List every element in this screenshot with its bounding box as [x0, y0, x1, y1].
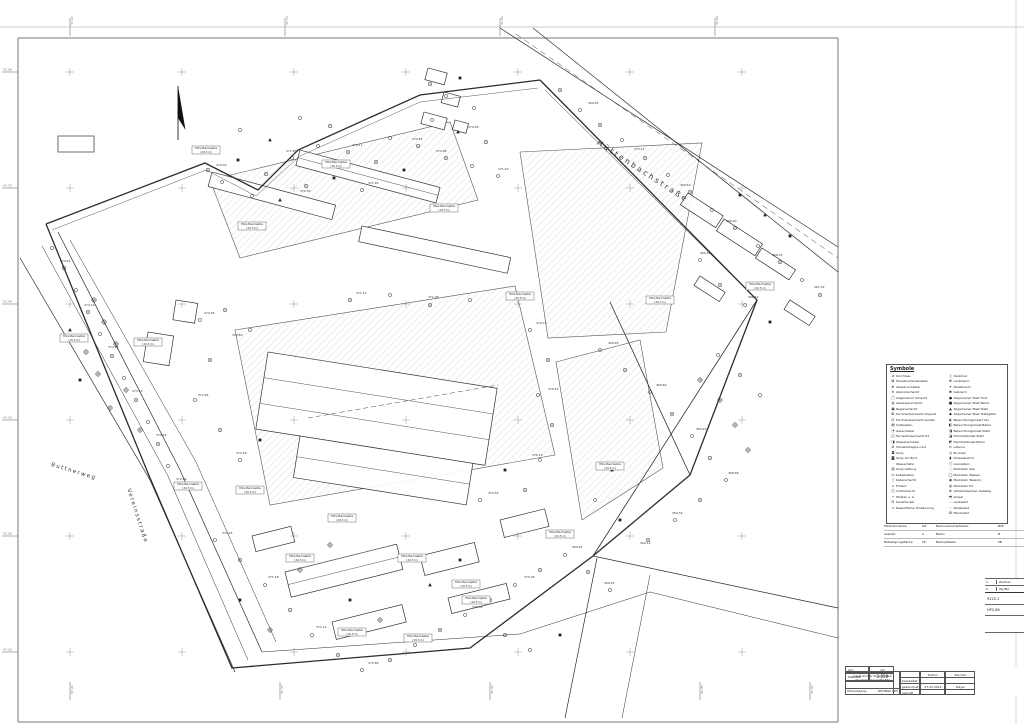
svg-text:35 230: 35 230 — [500, 16, 504, 25]
building-outline — [500, 509, 549, 538]
tree-height-label: Höhe Baumspitze(±0.5 m) — [404, 634, 432, 642]
elevation-label: 369.85 — [588, 101, 599, 105]
svg-text:(±0.5 m): (±0.5 m) — [346, 632, 357, 636]
survey-point — [156, 442, 160, 446]
grid-cross — [178, 68, 186, 76]
grid-cross — [738, 184, 746, 192]
elevation-label: 367.92 — [814, 285, 825, 289]
date-geprueft — [921, 690, 944, 695]
svg-text:Höhe Baumspitze: Höhe Baumspitze — [195, 146, 217, 150]
building-outline — [359, 226, 511, 273]
svg-text:(±0.5 m): (±0.5 m) — [470, 600, 481, 604]
elevation-label: 369.54 — [680, 183, 691, 187]
survey-point — [800, 278, 803, 281]
sheet-label-cell: Anl. — [845, 666, 869, 673]
survey-point — [403, 169, 406, 172]
survey-point — [484, 140, 488, 144]
survey-point — [428, 82, 432, 86]
survey-point — [237, 159, 240, 162]
survey-point — [558, 88, 562, 92]
legend-item-label: Mischwald — [954, 511, 970, 517]
svg-text:35 120: 35 120 — [70, 16, 74, 25]
survey-point — [513, 583, 516, 586]
elevation-label: 369.12 — [640, 541, 651, 545]
revision-table: 1. Zeichen b. Wy/Ma 9225-1 HP2-86 — [985, 578, 1024, 633]
svg-text:(±0.5 m): (±0.5 m) — [200, 150, 211, 154]
scale-label-cell: Maßstab — [845, 673, 869, 681]
svg-text:(±0.5 m): (±0.5 m) — [294, 558, 305, 562]
survey-plan-sheet: 35 12035 17535 23035 28535 12035 17535 2… — [0, 0, 1024, 724]
legend-item: ⁂Mischwald — [948, 511, 1006, 517]
survey-point — [95, 371, 101, 377]
svg-text:(±0.5 m): (±0.5 m) — [330, 164, 341, 168]
svg-text:(±0.5 m): (±0.5 m) — [244, 490, 255, 494]
survey-point — [598, 123, 602, 127]
elevation-label: 372.66 — [176, 477, 187, 481]
svg-text:(±0.5 m): (±0.5 m) — [754, 286, 765, 290]
surface-abbreviation-table: FahrbahndeckeOZBetonverbundpflasterBVPAs… — [884, 523, 1024, 547]
reference-number: HP2-86 — [985, 604, 1024, 615]
building-outline — [58, 136, 94, 152]
building-outline — [420, 542, 479, 575]
survey-point — [122, 376, 125, 379]
survey-point — [428, 583, 432, 586]
tree-height-label: Höhe Baumspitze(±0.5 m) — [328, 514, 356, 522]
survey-point — [690, 434, 693, 437]
abbreviation-cell: Befestigungsfläche — [884, 539, 922, 546]
survey-point — [724, 478, 727, 481]
survey-point — [288, 608, 292, 612]
tree-height-label: Höhe Baumspitze(±0.5 m) — [134, 338, 162, 346]
survey-point — [68, 328, 72, 331]
survey-point — [79, 379, 82, 382]
grid-cross — [178, 184, 186, 192]
building-outline — [784, 300, 815, 326]
title-block: Gauß-Krüger Koordinaten (System Bessel R… — [845, 666, 1024, 695]
grid-cross — [402, 68, 410, 76]
survey-point — [101, 319, 107, 325]
elevation-label: 368.88 — [728, 471, 739, 475]
svg-text:Höhe Baumspitze: Höhe Baumspitze — [137, 338, 159, 342]
elevation-label: 370.12 — [634, 147, 645, 151]
svg-text:Höhe Baumspitze: Höhe Baumspitze — [241, 222, 263, 226]
survey-point — [86, 310, 90, 314]
survey-point — [134, 398, 138, 402]
survey-point — [620, 138, 623, 141]
elevation-label: 371.95 — [222, 531, 233, 535]
grid-cross — [178, 532, 186, 540]
svg-text:(±0.5 m): (±0.5 m) — [654, 300, 665, 304]
building-outline — [694, 276, 725, 302]
svg-text:Höhe Baumspitze: Höhe Baumspitze — [407, 634, 429, 638]
survey-point — [336, 653, 340, 657]
abbreviation-cell: OZ — [922, 523, 936, 530]
survey-point — [718, 283, 722, 287]
svg-text:Höhe Baumspitze: Höhe Baumspitze — [599, 462, 621, 466]
row-label-geprueft: geprüft — [901, 690, 919, 695]
survey-point — [98, 332, 101, 335]
survey-point — [459, 559, 462, 562]
survey-point — [388, 658, 392, 662]
survey-point — [137, 427, 143, 433]
elevation-label: 370.75 — [536, 321, 547, 325]
survey-point — [504, 469, 507, 472]
svg-text:43 270: 43 270 — [3, 184, 12, 188]
elevation-label: 372.45 — [412, 137, 423, 141]
svg-text:Höhe Baumspitze: Höhe Baumspitze — [239, 486, 261, 490]
tree-height-label: Höhe Baumspitze(±0.5 m) — [596, 462, 624, 470]
building-outline — [143, 332, 173, 366]
svg-text:(±0.5 m): (±0.5 m) — [438, 208, 449, 212]
survey-point — [470, 164, 473, 167]
tree-height-label: Höhe Baumspitze(±0.5 m) — [238, 222, 266, 230]
boundary-line — [70, 240, 276, 642]
elevation-label: 370.34 — [472, 605, 483, 609]
survey-point — [267, 627, 273, 633]
survey-point — [818, 293, 822, 297]
elevation-label: 371.20 — [498, 167, 509, 171]
elevation-label: 372.88 — [436, 149, 447, 153]
svg-text:Höhe Baumspitze: Höhe Baumspitze — [331, 514, 353, 518]
survey-point — [316, 144, 319, 147]
boundary-line — [650, 592, 838, 638]
survey-point — [348, 298, 352, 302]
survey-point — [333, 177, 336, 180]
grid-cross — [514, 648, 522, 656]
survey-point — [478, 498, 481, 501]
elevation-label: 372.30 — [300, 189, 311, 193]
elevation-label: 373.85 — [108, 345, 119, 349]
survey-point — [438, 628, 442, 632]
grid-cross — [66, 532, 74, 540]
boundary-line — [565, 558, 597, 718]
svg-text:(±0.5 m): (±0.5 m) — [412, 638, 423, 642]
tree-height-label: Höhe Baumspitze(±0.5 m) — [546, 530, 574, 538]
revision-cell: b. — [985, 587, 997, 591]
survey-point — [732, 422, 738, 428]
elevation-label: 369.82 — [572, 545, 583, 549]
survey-point — [758, 393, 761, 396]
grid-cross — [290, 68, 298, 76]
survey-point — [360, 668, 363, 671]
svg-text:Höhe Baumspitze: Höhe Baumspitze — [341, 628, 363, 632]
revision-cell: 1. — [985, 580, 997, 584]
survey-point — [738, 373, 742, 377]
survey-point — [673, 518, 676, 521]
date-column: Datum 27.03.2014 — [920, 671, 945, 695]
elevation-label: 373.11 — [352, 143, 363, 147]
svg-text:Höhe Baumspitze: Höhe Baumspitze — [289, 554, 311, 558]
elevation-label: 372.02 — [216, 163, 227, 167]
svg-text:Höhe Baumspitze: Höhe Baumspitze — [325, 160, 347, 164]
survey-point — [745, 447, 751, 453]
grid-cross — [738, 648, 746, 656]
abbreviation-row: FahrbahndeckeOZBetonverbundpflasterBVP — [884, 523, 1024, 531]
grid-cross — [66, 416, 74, 424]
survey-point — [198, 318, 201, 321]
elevation-label: 370.55 — [488, 491, 499, 495]
abbreviation-cell: FP — [922, 539, 936, 546]
scale-sheet-block: Anl. 1/1 Maßstab 1:250 — [845, 666, 894, 695]
elevation-label: 372.18 — [236, 451, 247, 455]
survey-point — [263, 583, 266, 586]
survey-point — [218, 428, 222, 432]
survey-point — [716, 353, 719, 356]
elevation-label: 368.44 — [748, 295, 759, 299]
survey-point — [670, 412, 674, 416]
elevation-label: 371.48 — [268, 575, 279, 579]
survey-point — [708, 456, 712, 460]
survey-point — [107, 405, 113, 411]
sheet-number-cell: 1/1 — [869, 666, 894, 673]
legend-panel: Symbole ⌀Durchlass⊠Hausanschlusskasten⊕A… — [886, 364, 1008, 524]
svg-text:35 120: 35 120 — [70, 685, 74, 694]
grid-cross — [738, 416, 746, 424]
survey-point — [698, 258, 701, 261]
boundary-line — [593, 556, 838, 608]
abbreviation-cell: B — [998, 531, 1014, 538]
svg-text:35 310: 35 310 — [810, 685, 814, 694]
survey-point — [619, 519, 622, 522]
survey-point — [388, 293, 391, 296]
building-outline — [173, 300, 198, 323]
abbreviation-cell: Beton — [936, 531, 998, 538]
svg-text:Höhe Baumspitze: Höhe Baumspitze — [63, 334, 85, 338]
survey-point — [496, 174, 499, 177]
grid-cross — [178, 648, 186, 656]
grid-cross — [514, 184, 522, 192]
grid-cross — [290, 300, 298, 308]
svg-text:Höhe Baumspitze: Höhe Baumspitze — [549, 530, 571, 534]
building-outline — [425, 68, 447, 85]
survey-point — [208, 358, 212, 362]
survey-point — [223, 308, 227, 312]
elevation-label: 369.25 — [696, 427, 707, 431]
svg-text:35 175: 35 175 — [280, 685, 284, 694]
grid-cross — [626, 648, 634, 656]
survey-point — [213, 538, 216, 541]
elevation-label: 369.60 — [656, 383, 667, 387]
grid-cross — [66, 68, 74, 76]
elevation-label: 372.84 — [198, 393, 209, 397]
elevation-label: 373.40 — [132, 389, 143, 393]
tree-height-label: Höhe Baumspitze(±0.5 m) — [338, 628, 366, 636]
elevation-label: 370.96 — [468, 125, 479, 129]
grid-cross — [290, 648, 298, 656]
tree-height-label: Höhe Baumspitze(±0.5 m) — [236, 486, 264, 494]
legend-item: ▱Rasenfläche, Einzäunung — [890, 506, 948, 512]
survey-point — [578, 108, 581, 111]
survey-point — [523, 488, 527, 492]
tree-height-label: Höhe Baumspitze(±0.5 m) — [398, 554, 426, 562]
abbreviation-cell: BVP — [998, 523, 1014, 530]
svg-text:(±0.5 m): (±0.5 m) — [554, 534, 565, 538]
survey-point — [559, 634, 562, 637]
elevation-label: 373.02 — [156, 433, 167, 437]
svg-text:(±0.5 m): (±0.5 m) — [246, 226, 257, 230]
survey-point — [697, 377, 703, 383]
boundary-line — [42, 246, 248, 660]
initials-column: Zeichen Mayer — [945, 671, 975, 695]
survey-point — [608, 588, 611, 591]
elevation-label: 370.42 — [548, 387, 559, 391]
building-outline — [441, 92, 460, 107]
building-outline — [716, 219, 762, 256]
grid-cross — [738, 68, 746, 76]
svg-text:(±0.5 m): (±0.5 m) — [406, 558, 417, 562]
svg-text:Höhe Baumspitze: Höhe Baumspitze — [433, 204, 455, 208]
elevation-label: 368.90 — [726, 219, 737, 223]
grid-cross — [514, 68, 522, 76]
elevation-label: 370.08 — [524, 575, 535, 579]
abbreviation-cell: Fahrbahndecke — [884, 523, 922, 530]
survey-point — [110, 354, 114, 358]
building-outline — [252, 526, 295, 551]
survey-point — [789, 235, 792, 238]
abbreviation-cell: A — [922, 531, 936, 538]
survey-point — [268, 138, 272, 141]
survey-point — [563, 553, 566, 556]
survey-point — [328, 124, 332, 128]
survey-point — [298, 116, 301, 119]
survey-point — [50, 246, 53, 249]
survey-point — [413, 643, 416, 646]
survey-point — [327, 542, 333, 548]
elevation-label: 371.85 — [286, 149, 297, 153]
grid-cross — [626, 532, 634, 540]
elevation-label: 369.10 — [700, 251, 711, 255]
survey-point — [193, 398, 196, 401]
hatched-area — [556, 340, 663, 520]
elevation-label: 371.12 — [316, 625, 327, 629]
survey-point — [550, 423, 554, 427]
svg-text:Höhe Baumspitze: Höhe Baumspitze — [465, 596, 487, 600]
grid-cross — [178, 416, 186, 424]
survey-point — [546, 358, 550, 362]
drawing-number: 9225-1 — [985, 592, 1024, 604]
svg-text:43 180: 43 180 — [3, 532, 12, 536]
elevation-label: 371.08 — [428, 295, 439, 299]
abbreviation-cell: Betonverbundpflaster — [936, 523, 998, 530]
survey-point — [259, 439, 262, 442]
elevation-label: 372.95 — [204, 311, 215, 315]
survey-point — [739, 194, 742, 197]
hatched-area — [520, 143, 702, 338]
grid-cross — [66, 184, 74, 192]
survey-point — [239, 599, 242, 602]
legend-column-left: ⌀Durchlass⊠Hausanschlusskasten⊕Absperrsc… — [890, 374, 948, 517]
svg-text:43 240: 43 240 — [3, 300, 12, 304]
svg-text:(±0.5 m): (±0.5 m) — [460, 584, 471, 588]
survey-point — [146, 420, 149, 423]
svg-text:(±0.5 m): (±0.5 m) — [142, 342, 153, 346]
survey-point — [538, 568, 542, 572]
grid-cross — [66, 648, 74, 656]
grid-cross — [626, 68, 634, 76]
svg-text:43 210: 43 210 — [3, 416, 12, 420]
survey-point — [310, 633, 313, 636]
elevation-label: 374.52 — [60, 259, 71, 263]
legend-column-right: ◊Denkmal❋Laubbaum✶Nadelbaum✽Gebüsch●Allg… — [948, 374, 1006, 517]
revision-cell: Zeichen — [997, 580, 1024, 584]
boundary-line — [232, 648, 470, 668]
tree-height-label: Höhe Baumspitze(±0.5 m) — [322, 160, 350, 168]
tree-height-label: Höhe Baumspitze(±0.5 m) — [286, 554, 314, 562]
legend-item-label: Rasenfläche, Einzäunung — [896, 506, 934, 512]
revision-empty-row — [985, 615, 1024, 633]
elevation-label: 371.52 — [356, 291, 367, 295]
elevation-label: 371.64 — [368, 181, 379, 185]
svg-text:Höhe Baumspitze: Höhe Baumspitze — [649, 296, 671, 300]
grid-cross — [402, 532, 410, 540]
svg-text:Höhe Baumspitze: Höhe Baumspitze — [401, 554, 423, 558]
survey-point — [538, 458, 541, 461]
tree-height-label: Höhe Baumspitze(±0.5 m) — [462, 596, 490, 604]
tree-height-label: Höhe Baumspitze(±0.5 m) — [192, 146, 220, 154]
tree-height-label: Höhe Baumspitze(±0.5 m) — [506, 292, 534, 300]
svg-text:(±0.5 m): (±0.5 m) — [336, 518, 347, 522]
svg-text:35 285: 35 285 — [715, 16, 719, 25]
svg-text:43 300: 43 300 — [3, 68, 12, 72]
tree-height-label: Höhe Baumspitze(±0.5 m) — [174, 482, 202, 490]
grid-cross — [738, 532, 746, 540]
tree-height-label: Höhe Baumspitze(±0.5 m) — [646, 296, 674, 304]
survey-point — [166, 464, 169, 467]
tree-height-label: Höhe Baumspitze(±0.5 m) — [452, 580, 480, 588]
abbreviation-row: BefestigungsflächeFPBetonpflasterPB — [884, 539, 1024, 547]
elevation-label: 369.34 — [672, 511, 683, 515]
tree-height-label: Höhe Baumspitze(±0.5 m) — [60, 334, 88, 342]
survey-point — [83, 349, 89, 355]
survey-point — [238, 458, 241, 461]
tree-height-label: Höhe Baumspitze(±0.5 m) — [746, 282, 774, 290]
elevation-label: 374.10 — [84, 303, 95, 307]
grid-cross — [402, 648, 410, 656]
svg-text:35 175: 35 175 — [285, 16, 289, 25]
building-outline — [452, 120, 468, 133]
grid-cross — [66, 300, 74, 308]
svg-text:Höhe Baumspitze: Höhe Baumspitze — [455, 580, 477, 584]
site-plan-drawing: 35 12035 17535 23035 28535 12035 17535 2… — [0, 0, 1024, 724]
elevation-label: 369.55 — [604, 581, 615, 585]
elevation-label: 370.86 — [368, 661, 379, 665]
survey-point — [769, 321, 772, 324]
scale-value-cell: 1:250 — [869, 673, 894, 681]
tree-height-label: Höhe Baumspitze(±0.5 m) — [430, 204, 458, 212]
survey-point — [238, 128, 241, 131]
survey-point — [698, 498, 702, 502]
survey-point — [74, 288, 77, 291]
abbreviation-cell: Asphalt — [884, 531, 922, 538]
scale-block-empty-cell — [845, 681, 894, 695]
survey-point — [472, 106, 475, 109]
boundary-line — [58, 232, 262, 652]
legend-title: Symbole — [890, 367, 1005, 373]
elevation-label: 369.95 — [608, 341, 619, 345]
svg-text:(±0.5 m): (±0.5 m) — [604, 466, 615, 470]
building-outline — [285, 544, 403, 597]
north-arrow-icon — [178, 86, 186, 140]
svg-text:43 150: 43 150 — [3, 648, 12, 652]
survey-point — [459, 77, 462, 80]
survey-point — [123, 387, 129, 393]
revision-cell: Wy/Ma — [997, 587, 1024, 591]
svg-text:Höhe Baumspitze: Höhe Baumspitze — [749, 282, 771, 286]
survey-point — [528, 648, 531, 651]
svg-text:Höhe Baumspitze: Höhe Baumspitze — [509, 292, 531, 296]
survey-point — [463, 613, 466, 616]
survey-point — [528, 328, 531, 331]
